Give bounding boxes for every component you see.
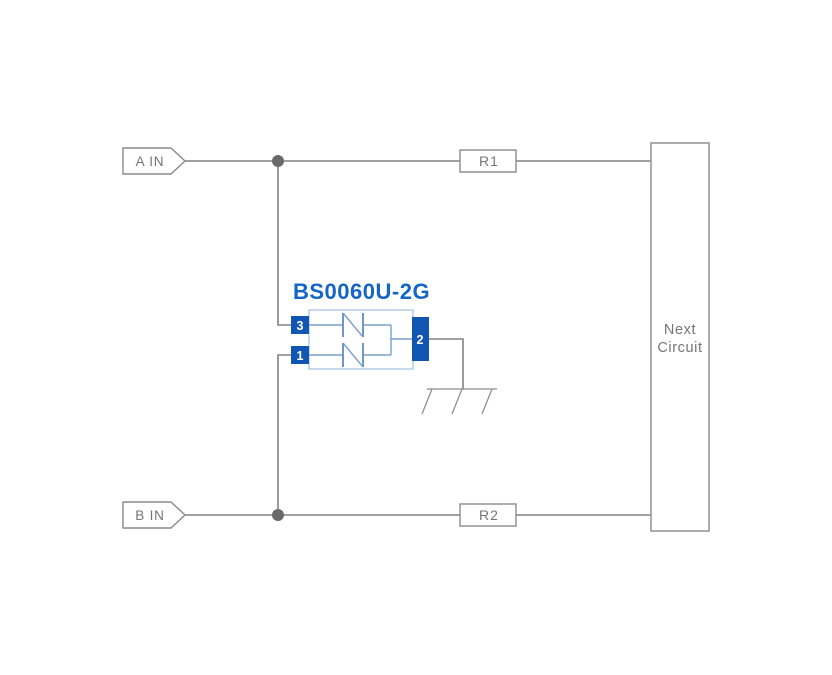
wire-b-branch	[278, 355, 291, 515]
port-b-in: B IN	[123, 502, 185, 528]
junction-dot-a	[272, 155, 284, 167]
resistor-r2: R2	[460, 504, 516, 526]
port-b-in-label: B IN	[135, 508, 164, 523]
wire-a-branch	[278, 161, 291, 325]
port-a-in: A IN	[123, 148, 185, 174]
next-circuit-block: Next Circuit	[651, 143, 709, 531]
next-circuit-label-line1: Next	[664, 322, 696, 338]
component-title: BS0060U-2G	[293, 279, 430, 304]
pin-2-label: 2	[417, 333, 424, 347]
port-a-in-label: A IN	[136, 154, 165, 169]
schematic-canvas: R1 R2 Next Circuit A IN B IN BS0060U-2G	[0, 0, 832, 675]
pin-1-label: 1	[297, 349, 304, 363]
circuit-diagram: R1 R2 Next Circuit A IN B IN BS0060U-2G	[0, 0, 832, 675]
pin-2: 2	[412, 317, 429, 361]
chassis-ground-icon	[422, 389, 497, 414]
resistor-r2-label: R2	[479, 507, 499, 523]
esd-component: BS0060U-2G 3 1	[291, 279, 430, 369]
pin-3: 3	[291, 316, 309, 334]
resistor-r1: R1	[460, 150, 516, 172]
junction-dot-b	[272, 509, 284, 521]
next-circuit-label-line2: Circuit	[657, 340, 702, 356]
pin-1: 1	[291, 346, 309, 364]
pin-3-label: 3	[297, 319, 304, 333]
resistor-r1-label: R1	[479, 153, 499, 169]
wire-pin2-to-ground	[429, 339, 463, 389]
